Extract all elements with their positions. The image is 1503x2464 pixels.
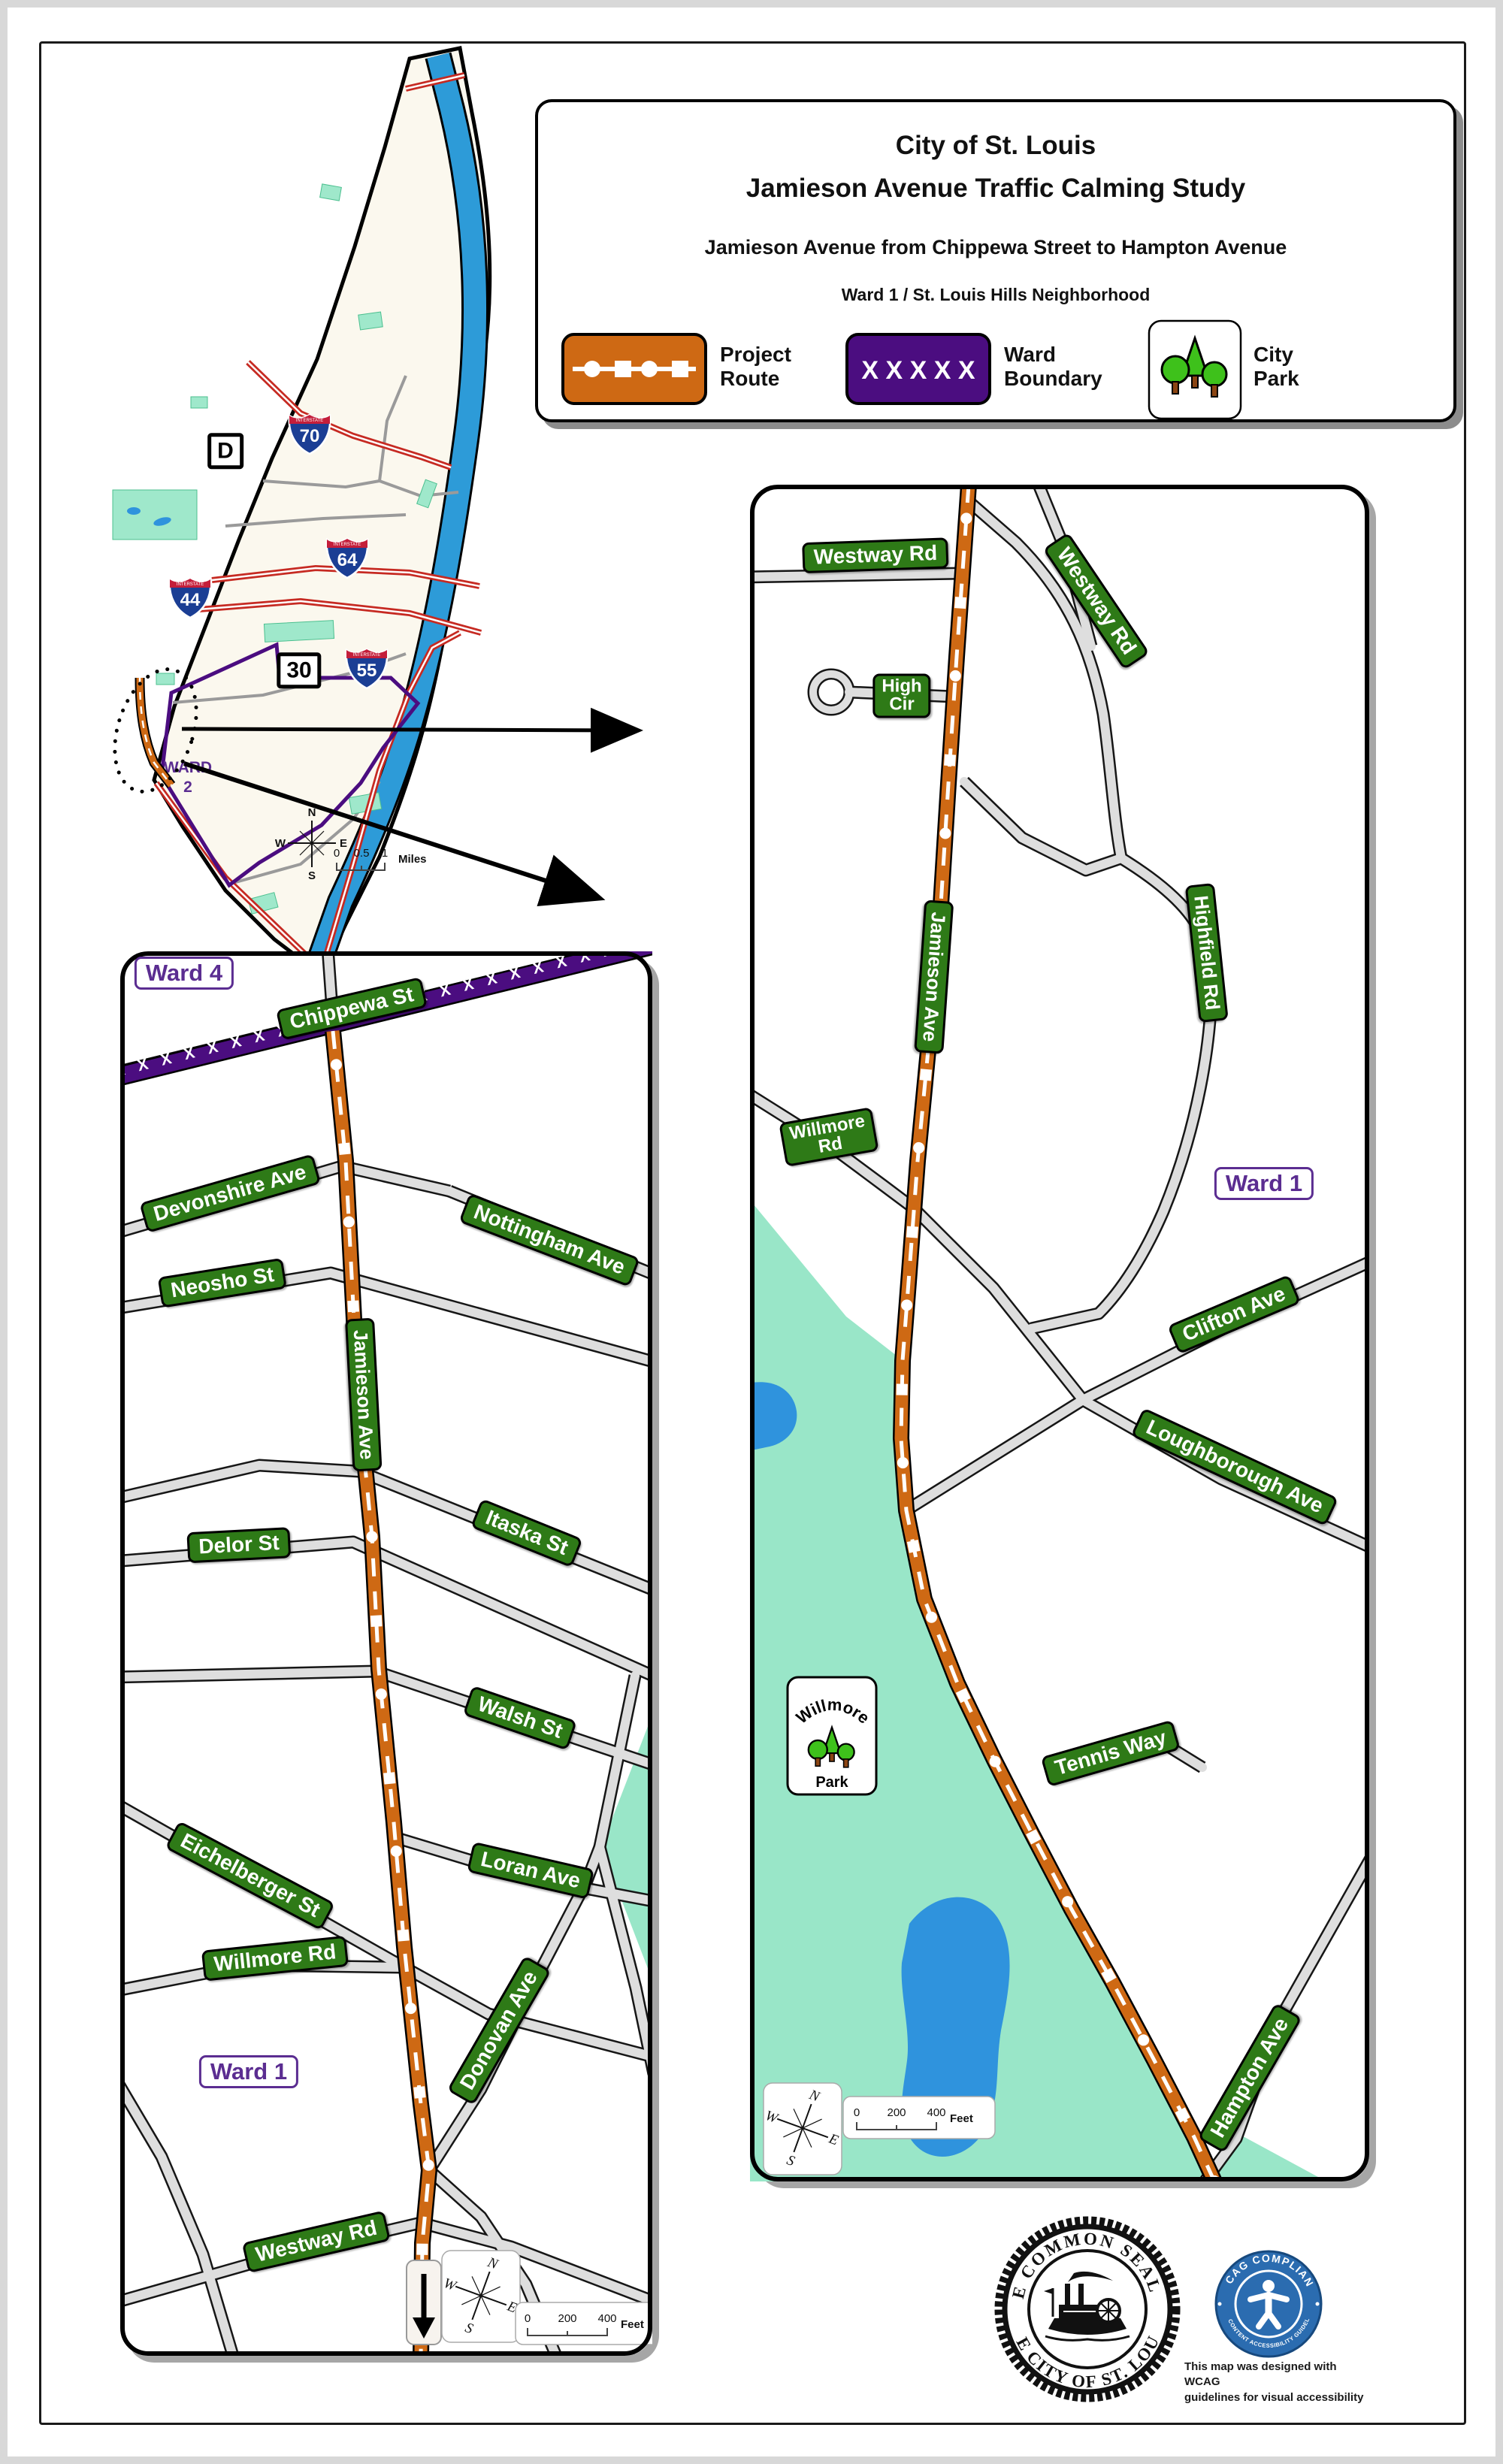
left-map-roads <box>120 951 652 2356</box>
svg-text:S: S <box>308 869 316 882</box>
city-seal: THE COMMON SEAL OF THE CITY OF ST. LOUIS… <box>982 2204 1193 2414</box>
ward1-label-right: Ward 1 <box>1214 1167 1314 1200</box>
street-sign-high-cir: High Cir <box>872 674 930 718</box>
svg-text:INTERSTATE: INTERSTATE <box>296 419 323 423</box>
right-map-scalebar: 0 200 400 Feet <box>843 2097 995 2139</box>
legend: Project Route X X X X X Ward Boundary <box>538 322 1453 412</box>
svg-text:55: 55 <box>357 661 377 681</box>
wcag-caption: This map was designed with WCAG guidelin… <box>1184 2360 1365 2405</box>
svg-text:2: 2 <box>183 779 192 796</box>
legend-ward-boundary-label: Ward Boundary <box>1004 343 1102 391</box>
street-sign-delor: Delor St <box>186 1527 291 1563</box>
svg-text:0: 0 <box>854 2106 860 2119</box>
ward1-label-left: Ward 1 <box>199 2055 298 2088</box>
svg-text:0.5: 0.5 <box>354 847 370 860</box>
legend-city-park-swatch <box>1147 319 1243 421</box>
svg-text:200: 200 <box>887 2106 906 2119</box>
svg-text:N: N <box>308 806 316 819</box>
svg-text:W: W <box>275 837 286 850</box>
svg-text:Park: Park <box>815 1774 848 1791</box>
left-detail-map: X X X X X X X X X X X X X X X X X X X X … <box>120 951 652 2356</box>
map-ward-neighborhood: Ward 1 / St. Louis Hills Neighborhood <box>538 285 1453 305</box>
svg-text:64: 64 <box>337 550 358 570</box>
overview-map: WARD 2 INTERSTATE 70 INTERSTATE 64 INTER… <box>90 38 526 992</box>
svg-text:0: 0 <box>525 2312 531 2325</box>
svg-text:INTERSTATE: INTERSTATE <box>177 582 204 587</box>
title-block: City of St. Louis Jamieson Avenue Traffi… <box>535 99 1456 422</box>
ward2-label: WARD <box>164 759 212 776</box>
svg-text:INTERSTATE: INTERSTATE <box>334 543 361 547</box>
map-document-page: WARD 2 INTERSTATE 70 INTERSTATE 64 INTER… <box>0 0 1503 2464</box>
svg-text:400: 400 <box>597 2312 616 2325</box>
wcag-badge: WCAG COMPLIANT WEB CONTENT ACCESSIBILITY… <box>1201 2236 1336 2372</box>
svg-text:44: 44 <box>180 590 201 610</box>
svg-text:0: 0 <box>334 847 340 860</box>
map-title-line1: City of St. Louis <box>538 131 1453 161</box>
svg-text:Feet: Feet <box>950 2112 973 2125</box>
svg-text:Feet: Feet <box>621 2318 644 2331</box>
legend-ward-boundary-swatch: X X X X X <box>845 332 992 406</box>
left-map-scalebar: 0 200 400 Feet <box>516 2302 652 2345</box>
legend-project-route-swatch <box>561 332 708 406</box>
ward4-label: Ward 4 <box>135 957 234 990</box>
jamieson-route-left <box>333 1031 429 2356</box>
route-marker-30: 30 <box>277 652 321 688</box>
street-sign-westway-right-w: Westway Rd <box>802 537 949 573</box>
svg-text:400: 400 <box>927 2106 945 2119</box>
map-title-line2: Jamieson Avenue Traffic Calming Study <box>538 174 1453 204</box>
svg-text:Miles: Miles <box>398 853 427 866</box>
svg-text:70: 70 <box>300 426 320 446</box>
svg-text:INTERSTATE: INTERSTATE <box>353 653 380 658</box>
right-map-compass: N S E W <box>751 2076 853 2181</box>
legend-project-route-label: Project Route <box>720 343 791 391</box>
svg-text:200: 200 <box>558 2312 576 2325</box>
route-marker-d: D <box>207 433 243 469</box>
willmore-park-sign: Willmore Park <box>788 1677 876 1794</box>
route-continuation-arrow <box>407 2260 441 2345</box>
svg-text:1: 1 <box>382 847 388 860</box>
svg-text:X X X X X: X X X X X <box>861 356 975 385</box>
right-detail-map: Willmore Park <box>750 485 1369 2181</box>
svg-text:E: E <box>340 837 347 850</box>
legend-city-park-label: City Park <box>1254 343 1299 391</box>
map-subtitle: Jamieson Avenue from Chippewa Street to … <box>538 236 1453 259</box>
